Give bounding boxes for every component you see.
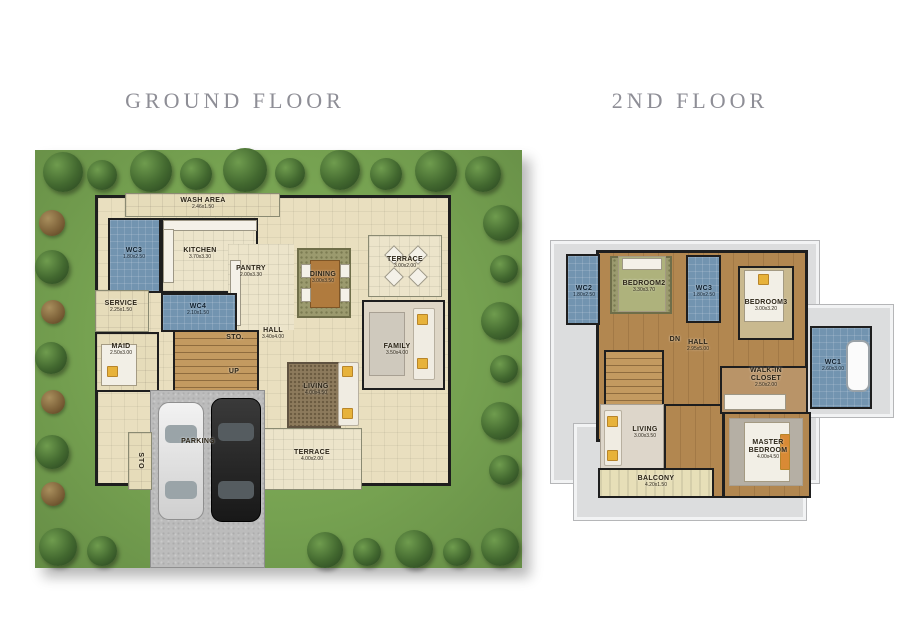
bush-icon [39, 210, 65, 236]
tree-icon [465, 156, 501, 192]
tree-icon [39, 528, 77, 566]
room-label-wc3-second: WC3 1.80x2.50 [693, 285, 715, 299]
tree-icon [130, 150, 172, 192]
tree-icon [443, 538, 471, 566]
bush-icon [41, 482, 65, 506]
bush-icon [41, 390, 65, 414]
tree-icon [223, 148, 267, 192]
tree-icon [275, 158, 305, 188]
ground-floor-title: GROUND FLOOR [115, 88, 355, 114]
tree-icon [370, 158, 402, 190]
tree-icon [395, 530, 433, 568]
black-car [211, 398, 261, 522]
sofa-cushion [607, 416, 618, 427]
tree-icon [481, 528, 519, 566]
room-label-living: LIVING 4.00x4.50 [303, 383, 328, 397]
room-label-master-bedroom: MASTER BEDROOM 4.00x4.50 [745, 439, 791, 461]
room-label-wc1: WC1 2.60x3.00 [822, 359, 844, 373]
second-floor-title: 2ND FLOOR [595, 88, 785, 114]
stairs-down-label: DN [670, 336, 681, 344]
tree-icon [415, 150, 457, 192]
room-label-terrace-top: TERRACE 3.00x2.00 [387, 256, 423, 270]
sofa-cushion [342, 366, 353, 377]
tree-icon [353, 538, 381, 566]
bathtub [846, 340, 870, 392]
sofa-cushion [417, 358, 428, 369]
bush-icon [41, 300, 65, 324]
room-label-sto: STO. [226, 334, 243, 342]
room-label-kitchen: KITCHEN 3.70x3.30 [183, 247, 216, 261]
car-windshield [218, 423, 254, 441]
room-label-pantry: PANTRY 2.00x3.30 [236, 265, 266, 279]
stairs-up-label: UP [229, 368, 239, 376]
sofa-cushion [342, 408, 353, 419]
room-label-dining: DINING 3.00x3.50 [310, 271, 336, 285]
tree-icon [43, 152, 83, 192]
bedroom2-pillow [622, 258, 662, 270]
room-label-balcony: BALCONY 4.20x1.50 [638, 475, 675, 489]
room-label-hall: HALL 3.40x4.00 [262, 327, 284, 341]
room-label-parking: PARKING [181, 438, 215, 446]
dining-chair [340, 288, 350, 302]
maid-pillow [107, 366, 118, 377]
sofa-cushion [417, 314, 428, 325]
room-label-bedroom2: BEDROOM2 3.30x3.70 [623, 280, 666, 294]
tree-icon [87, 160, 117, 190]
room-label-living2: LIVING 3.00x3.50 [632, 426, 657, 440]
tree-icon [481, 302, 519, 340]
floorplan-canvas: GROUND FLOOR 2ND FLOOR [0, 0, 905, 634]
tree-icon [489, 455, 519, 485]
tree-icon [87, 536, 117, 566]
room-label-wash-area: WASH AREA 2.46x1.50 [180, 197, 225, 211]
room-label-terrace-bottom: TERRACE 4.00x2.00 [294, 449, 330, 463]
room-label-hall-second: HALL 2.95x5.00 [687, 339, 709, 353]
dining-chair [301, 288, 311, 302]
ground-floor-plan: WASH AREA 2.46x1.50 WC3 1.80x2.50 KITCHE… [35, 150, 522, 568]
tree-icon [490, 355, 518, 383]
room-label-maid: MAID 2.50x3.00 [110, 343, 132, 357]
dining-chair [340, 264, 350, 278]
tree-icon [35, 435, 69, 469]
sofa-cushion [607, 450, 618, 461]
room-label-wc2: WC2 1.80x2.50 [573, 285, 595, 299]
tree-icon [35, 342, 67, 374]
tree-icon [180, 158, 212, 190]
stairs-down [604, 350, 664, 408]
car-rear-window [218, 481, 254, 499]
room-label-wc4: WC4 2.10x1.50 [187, 303, 209, 317]
tree-icon [481, 402, 519, 440]
kitchen-counter [163, 229, 174, 283]
second-floor-plan: WC2 1.80x2.50 BEDROOM2 3.30x3.70 WC3 1.8… [548, 228, 898, 524]
tree-icon [490, 255, 518, 283]
room-label-walkin-closet: WALK-IN CLOSET 2.50x2.00 [743, 367, 789, 389]
room-label-bedroom3: BEDROOM3 3.00x3.20 [745, 299, 788, 313]
tree-icon [307, 532, 343, 568]
kitchen-counter [163, 220, 257, 231]
room-label-family: FAMILY 3.50x4.00 [384, 343, 411, 357]
room-label-service: SERVICE 2.25x1.50 [105, 300, 138, 314]
tree-icon [483, 205, 519, 241]
tree-icon [35, 250, 69, 284]
car-rear-window [165, 481, 197, 499]
tree-icon [320, 150, 360, 190]
room-label-wc3: WC3 1.80x2.50 [123, 247, 145, 261]
room-label-sto-left: STO [136, 452, 144, 469]
closet-shelf [724, 394, 786, 410]
white-car [158, 402, 204, 520]
bedroom3-pillow [758, 274, 769, 285]
